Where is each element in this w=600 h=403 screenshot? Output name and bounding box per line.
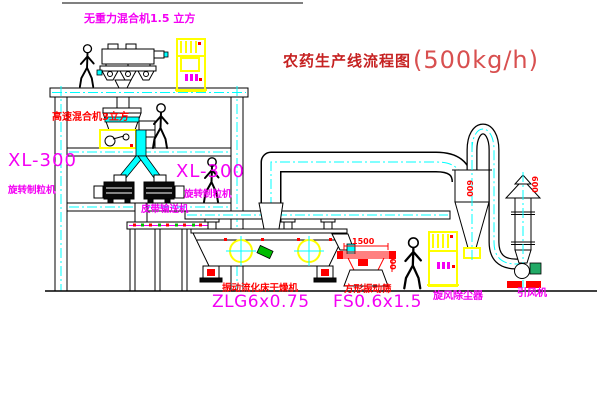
gravity-free-mixer — [97, 44, 168, 88]
dim-sieve-height: 600 — [388, 253, 396, 270]
roof-feed-pipe — [117, 97, 129, 109]
control-cabinet-2 — [427, 232, 459, 286]
label-high-speed-mixer: 高速混合机3立方 — [52, 113, 129, 123]
process-flow-diagram: 农药生产线流程图 (500kg/h) 无重力混合机1.5 立方 高速混合机3立方… — [0, 0, 600, 403]
label-granulator-right: 旋转制粒机 — [184, 190, 232, 200]
dim-cyclone: 600 — [465, 180, 473, 197]
label-xl300-right: XL-300 — [176, 163, 245, 181]
label-belt-conveyor: 皮带输送机 — [141, 205, 189, 215]
label-sieve-model: FS0.6x1.5 — [333, 294, 422, 311]
title-text: 农药生产线流程图 — [283, 50, 411, 71]
label-xl300-left: XL-300 — [8, 152, 77, 170]
label-gravity-free-mixer: 无重力混合机1.5 立方 — [84, 13, 195, 24]
label-dryer-model: ZLG6x0.75 — [212, 294, 310, 311]
person-roof — [80, 45, 94, 87]
dim-sieve-width: 1500 — [352, 238, 374, 246]
label-granulator-left: 旋转制粒机 — [8, 186, 56, 196]
label-fan: 引风机 — [517, 289, 547, 299]
granulator-left — [94, 175, 134, 203]
label-cyclone: 旋风除尘器 — [433, 292, 483, 302]
dim-stack: 600 — [530, 176, 538, 193]
fluid-bed-dryer — [191, 229, 347, 282]
control-cabinet-1 — [175, 39, 207, 91]
person-ground — [404, 238, 421, 288]
title-capacity: (500kg/h) — [413, 46, 539, 74]
diagram-title: 农药生产线流程图 (500kg/h) — [283, 46, 539, 74]
